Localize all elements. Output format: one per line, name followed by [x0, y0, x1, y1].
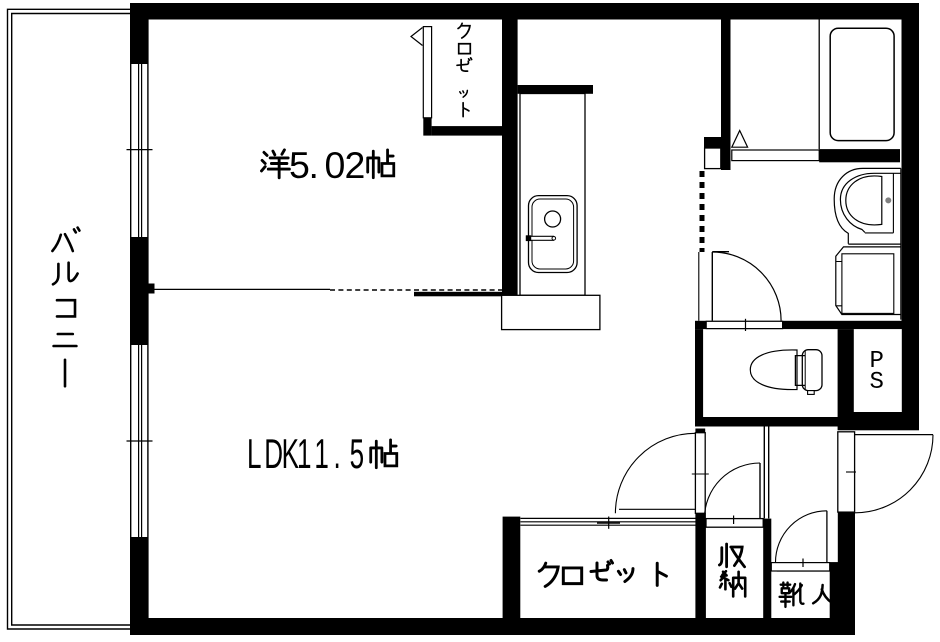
svg-text:LDK11.5: LDK11.5 — [247, 431, 364, 478]
svg-text:5.02: 5.02 — [289, 144, 365, 186]
svg-text:S: S — [870, 369, 884, 396]
